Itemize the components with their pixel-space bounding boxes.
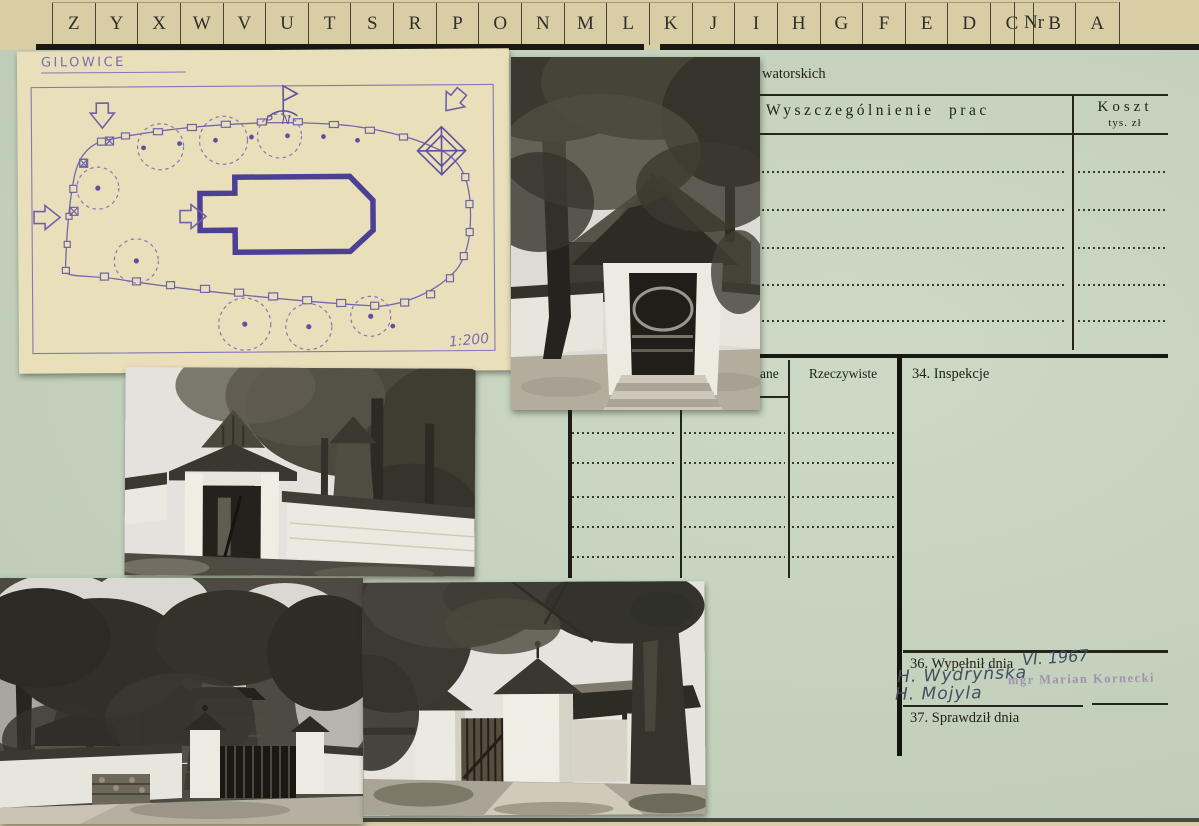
index-tab-z: Z <box>52 3 95 45</box>
index-tab-h: H <box>777 3 820 45</box>
church-outline <box>200 176 374 252</box>
index-tab-r: R <box>393 3 436 45</box>
index-tab-u: U <box>265 3 308 45</box>
belfry-symbol <box>418 127 466 175</box>
site-plan-paper: PN GILOWICE 1:200 <box>17 48 511 373</box>
index-tab-d: D <box>947 3 990 45</box>
cost-column-header: Koszt <box>1082 99 1168 116</box>
section-37-top-line-b <box>1092 703 1168 705</box>
church-plan-drawing: PN <box>17 48 511 373</box>
index-tab-s: S <box>350 3 393 45</box>
plan-place-name: GILOWICE <box>41 55 186 74</box>
index-tab-p: P <box>436 3 479 45</box>
photo-lychgate-steps <box>511 57 760 410</box>
gate-pillar <box>296 732 324 794</box>
photo-masonry-gate <box>362 581 705 816</box>
section-37-top-line-a <box>903 705 1083 707</box>
photo-church-tower <box>0 578 363 824</box>
index-tab-f: F <box>862 3 905 45</box>
wall-posts <box>61 118 473 312</box>
index-tab-y: Y <box>95 3 138 45</box>
heading-fragment: watorskich <box>762 66 826 83</box>
index-tab-m: M <box>564 3 607 45</box>
cost-column-unit: tys. zł <box>1082 117 1168 129</box>
index-tab-t: T <box>308 3 351 45</box>
section-34-label: 34. Inspekcje <box>912 366 989 383</box>
progress-table-divider-1 <box>680 410 682 578</box>
actual-header: Rzeczywiste <box>792 366 894 382</box>
works-table-header-line <box>757 133 1168 135</box>
gate-arrows <box>33 84 472 230</box>
works-table-bottom-line <box>757 354 1168 358</box>
index-tab-x: X <box>137 3 180 45</box>
signature-2: H. Mojyla <box>895 683 983 705</box>
planned-header-underline <box>757 396 789 398</box>
index-tab-n: N <box>521 3 564 45</box>
index-tab-e: E <box>905 3 948 45</box>
churchyard-wall-outline <box>64 121 471 308</box>
index-tab-row: ZYXWVUTSRPONMLKJIHGFEDCBA <box>52 2 1118 45</box>
photo-fence-gate <box>124 367 475 577</box>
north-arrow <box>269 86 297 116</box>
index-tab-g: G <box>820 3 863 45</box>
index-tab-j: J <box>692 3 735 45</box>
kornecki-stamp: mgr Marian Kornecki <box>1008 671 1155 689</box>
planned-header-fragment: ane <box>760 366 779 382</box>
index-tab-nr: Nr <box>1014 2 1120 44</box>
progress-table-divider-2 <box>788 360 790 578</box>
crossed-post-marks <box>69 137 114 215</box>
works-table-top-line <box>757 94 1168 96</box>
index-tab-o: O <box>478 3 521 45</box>
index-tab-v: V <box>223 3 266 45</box>
works-column-header: Wyszczególnienie prac <box>766 102 990 120</box>
index-tab-i: I <box>734 3 777 45</box>
tree-center-dots <box>95 133 395 331</box>
north-label: PN <box>265 113 299 127</box>
index-tab-k: K <box>649 3 692 45</box>
index-tab-l: L <box>606 3 649 45</box>
index-tab-w: W <box>180 3 223 45</box>
gate-pillar <box>190 730 220 798</box>
section-37-label: 37. Sprawdził dnia <box>910 710 1019 727</box>
